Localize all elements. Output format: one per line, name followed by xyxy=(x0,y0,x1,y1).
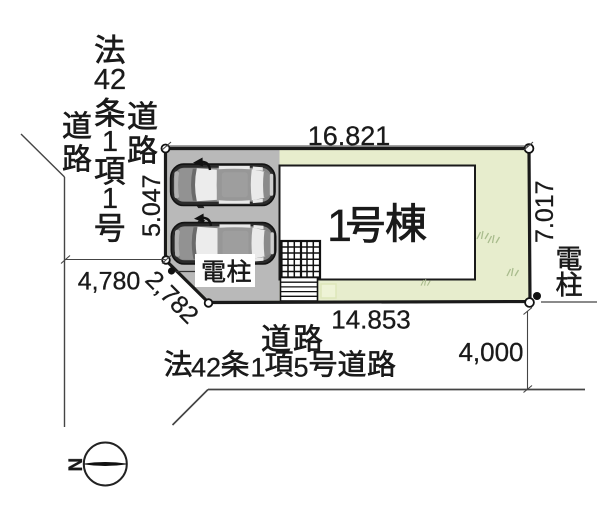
svg-text:42: 42 xyxy=(94,64,126,96)
svg-text:N: N xyxy=(66,458,87,472)
svg-text:14.853: 14.853 xyxy=(331,305,411,335)
svg-text:1: 1 xyxy=(327,200,352,251)
svg-text:7.017: 7.017 xyxy=(531,180,559,243)
svg-text:5.047: 5.047 xyxy=(138,174,166,237)
svg-text:5: 5 xyxy=(294,353,309,383)
svg-text:1: 1 xyxy=(102,126,118,158)
svg-text:1: 1 xyxy=(102,183,118,215)
svg-text:1: 1 xyxy=(251,353,266,383)
svg-text:16.821: 16.821 xyxy=(308,121,391,151)
svg-text:4,780: 4,780 xyxy=(78,268,141,296)
svg-text:4,000: 4,000 xyxy=(458,337,523,367)
svg-text:42: 42 xyxy=(191,353,221,383)
